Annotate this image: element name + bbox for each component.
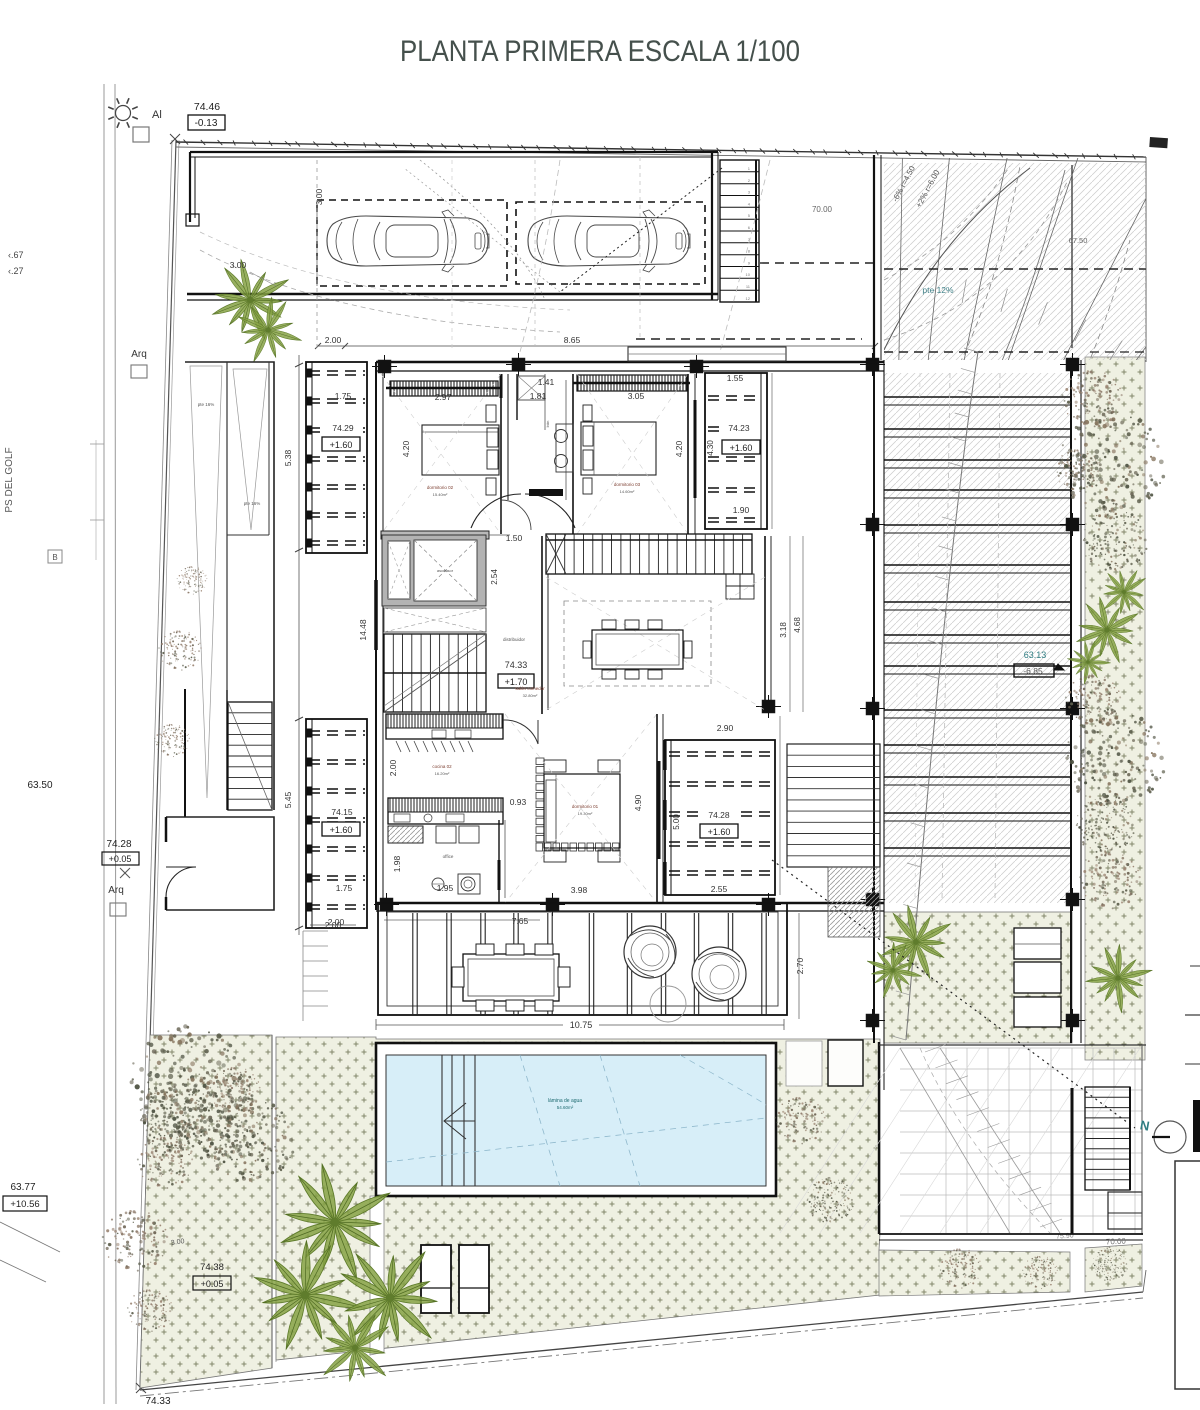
svg-text:74.46: 74.46 bbox=[194, 101, 220, 113]
svg-text:Al: Al bbox=[152, 109, 162, 121]
svg-text:4.30: 4.30 bbox=[706, 440, 715, 456]
svg-text:2.97: 2.97 bbox=[435, 392, 452, 402]
svg-text:10.75: 10.75 bbox=[570, 1020, 593, 1030]
svg-text:‹.27: ‹.27 bbox=[8, 266, 24, 276]
svg-text:74.28: 74.28 bbox=[708, 810, 730, 820]
svg-text:1.98: 1.98 bbox=[392, 855, 402, 872]
svg-text:67.50: 67.50 bbox=[1069, 236, 1088, 245]
svg-text:+0.05: +0.05 bbox=[109, 854, 132, 864]
svg-text:PLANTA PRIMERA ESCALA 1/100: PLANTA PRIMERA ESCALA 1/100 bbox=[400, 35, 800, 68]
svg-text:70.00: 70.00 bbox=[1106, 1236, 1127, 1246]
svg-text:5: 5 bbox=[748, 213, 751, 218]
svg-text:pte 16%: pte 16% bbox=[244, 501, 261, 506]
svg-text:12: 12 bbox=[746, 296, 751, 301]
svg-text:10: 10 bbox=[746, 272, 751, 277]
svg-text:‹.67: ‹.67 bbox=[8, 250, 24, 260]
svg-text:-6.85: -6.85 bbox=[1023, 666, 1043, 676]
svg-text:63.77: 63.77 bbox=[10, 1182, 35, 1193]
svg-text:2.54: 2.54 bbox=[490, 569, 499, 585]
svg-text:1.75: 1.75 bbox=[336, 883, 353, 893]
svg-text:3.00: 3.00 bbox=[314, 188, 324, 205]
svg-text:3.98: 3.98 bbox=[571, 885, 588, 895]
svg-text:9: 9 bbox=[748, 260, 751, 265]
svg-text:14.48: 14.48 bbox=[358, 619, 368, 641]
svg-text:6: 6 bbox=[748, 225, 751, 230]
svg-text:63.50: 63.50 bbox=[27, 780, 52, 791]
svg-text:cocina 02: cocina 02 bbox=[432, 764, 452, 769]
svg-text:11: 11 bbox=[746, 284, 751, 289]
svg-text:3: 3 bbox=[748, 190, 751, 195]
svg-text:0.93: 0.93 bbox=[510, 797, 527, 807]
svg-text:74.28: 74.28 bbox=[106, 839, 131, 850]
svg-text:4: 4 bbox=[748, 201, 751, 206]
svg-text:+1.60: +1.60 bbox=[330, 825, 353, 835]
svg-text:+1.60: +1.60 bbox=[730, 443, 753, 453]
svg-text:4.20: 4.20 bbox=[674, 440, 684, 457]
svg-text:4.68: 4.68 bbox=[793, 617, 802, 633]
svg-text:14.60m²: 14.60m² bbox=[620, 489, 635, 494]
svg-text:N: N bbox=[1139, 1117, 1151, 1133]
svg-text:8.65: 8.65 bbox=[564, 335, 581, 345]
svg-text:ascensor: ascensor bbox=[437, 568, 454, 573]
svg-text:salón comedor: salón comedor bbox=[515, 686, 545, 691]
svg-text:16.20m²: 16.20m² bbox=[435, 771, 450, 776]
svg-text:74.33: 74.33 bbox=[145, 1396, 170, 1407]
svg-text:1.55: 1.55 bbox=[727, 373, 744, 383]
svg-text:1.41: 1.41 bbox=[538, 377, 555, 387]
svg-text:8: 8 bbox=[748, 249, 751, 254]
svg-text:+0.05: +0.05 bbox=[201, 1279, 224, 1289]
svg-text:4.90: 4.90 bbox=[633, 794, 643, 811]
svg-text:2: 2 bbox=[748, 178, 751, 183]
svg-text:2.70: 2.70 bbox=[795, 957, 805, 974]
svg-text:1.81: 1.81 bbox=[530, 391, 547, 401]
svg-text:+10.56: +10.56 bbox=[10, 1199, 39, 1210]
svg-text:32.80m²: 32.80m² bbox=[523, 693, 538, 698]
svg-text:54.60m²: 54.60m² bbox=[557, 1105, 574, 1110]
svg-text:1.75: 1.75 bbox=[335, 391, 352, 401]
svg-text:3.18: 3.18 bbox=[779, 622, 788, 638]
svg-text:3.05: 3.05 bbox=[628, 391, 645, 401]
svg-text:1.50: 1.50 bbox=[506, 533, 523, 543]
svg-text:dormitorio 02: dormitorio 02 bbox=[427, 485, 454, 490]
svg-text:bán: bán bbox=[545, 421, 550, 428]
svg-text:5.38: 5.38 bbox=[283, 449, 293, 466]
svg-text:distribuidor: distribuidor bbox=[503, 637, 526, 642]
svg-text:pte 12%: pte 12% bbox=[922, 285, 954, 295]
svg-text:+1.60: +1.60 bbox=[330, 440, 353, 450]
svg-text:2.90: 2.90 bbox=[717, 723, 734, 733]
svg-text:19.30m²: 19.30m² bbox=[578, 811, 593, 816]
svg-text:1.95: 1.95 bbox=[437, 883, 454, 893]
svg-text:PS DEL GOLF: PS DEL GOLF bbox=[4, 447, 15, 512]
svg-text:Arq: Arq bbox=[131, 349, 147, 360]
svg-text:2.00: 2.00 bbox=[388, 759, 398, 776]
svg-text:-0.13: -0.13 bbox=[195, 118, 218, 129]
svg-text:5.00: 5.00 bbox=[672, 814, 681, 830]
svg-text:1: 1 bbox=[748, 166, 751, 171]
svg-text:4.20: 4.20 bbox=[401, 440, 411, 457]
svg-text:1.90: 1.90 bbox=[733, 505, 750, 515]
svg-text:lámina de agua: lámina de agua bbox=[548, 1098, 582, 1104]
svg-text:74.15: 74.15 bbox=[331, 807, 353, 817]
svg-text:2.00: 2.00 bbox=[325, 335, 342, 345]
svg-text:dormitorio 01: dormitorio 01 bbox=[572, 804, 599, 809]
svg-text:15.40m²: 15.40m² bbox=[433, 492, 448, 497]
svg-text:74.29: 74.29 bbox=[332, 423, 354, 433]
svg-text:2.55: 2.55 bbox=[711, 884, 728, 894]
svg-text:3.00: 3.00 bbox=[230, 260, 247, 270]
svg-text:5.45: 5.45 bbox=[283, 791, 293, 808]
svg-text:74.23: 74.23 bbox=[728, 423, 750, 433]
svg-text:Arq: Arq bbox=[108, 885, 124, 896]
svg-text:63.13: 63.13 bbox=[1024, 650, 1047, 660]
svg-text:pte 16%: pte 16% bbox=[198, 402, 215, 407]
svg-text:74.33: 74.33 bbox=[505, 660, 528, 670]
svg-text:office: office bbox=[443, 854, 454, 859]
svg-text:+1.60: +1.60 bbox=[708, 827, 731, 837]
svg-text:dormitorio 03: dormitorio 03 bbox=[614, 482, 641, 487]
svg-text:B: B bbox=[52, 553, 57, 562]
svg-text:74.38: 74.38 bbox=[200, 1262, 224, 1273]
svg-text:70.00: 70.00 bbox=[812, 205, 833, 214]
